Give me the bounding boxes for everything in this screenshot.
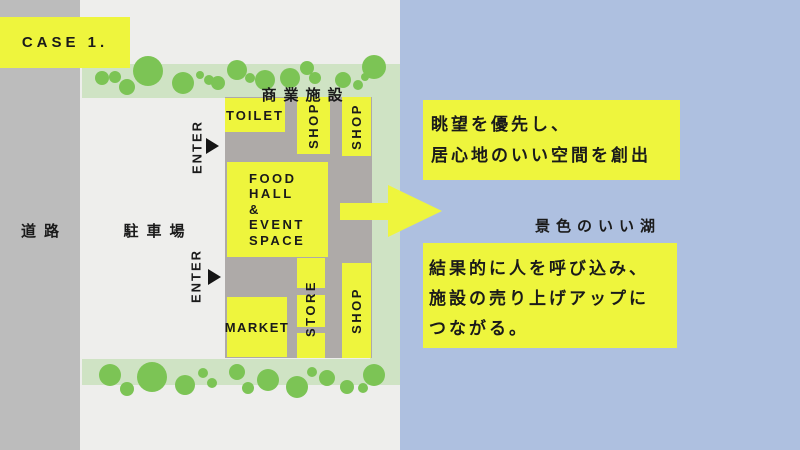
toilet-label: TOILET <box>226 108 284 123</box>
enter-label-bottom: ENTER <box>189 249 204 303</box>
shop-top-inner-label: SHOP <box>306 102 321 149</box>
callout-view-priority: 眺望を優先し、 居心地のいい空間を創出 <box>423 100 680 180</box>
market-label: MARKET <box>225 320 290 335</box>
store-label: STORE <box>304 279 319 336</box>
road-label: 道路 <box>0 220 80 241</box>
enter-label-top: ENTER <box>190 120 205 174</box>
callout-sales-result: 結果的に人を呼び込み、 施設の売り上げアップに つながる。 <box>423 243 677 348</box>
facility-label: 商業施設 <box>246 84 358 105</box>
enter-arrow-top-icon <box>206 138 219 154</box>
building-shop-top-inner: SHOP <box>297 97 330 154</box>
lake-label: 景色のいい湖 <box>528 215 668 236</box>
building-shop-bottom: SHOP <box>342 263 371 358</box>
shop-bottom-label: SHOP <box>349 287 364 334</box>
shop-top-outer-label: SHOP <box>349 103 364 150</box>
case-label: CASE 1. <box>22 34 108 51</box>
building-food-hall: FOOD HALL & EVENT SPACE <box>227 162 328 257</box>
enter-arrow-bottom-icon <box>208 269 221 285</box>
building-store: STORE <box>297 256 325 360</box>
slide-canvas: TOILET SHOP SHOP FOOD HALL & EVENT SPACE… <box>0 0 800 450</box>
building-shop-top-outer: SHOP <box>342 97 371 156</box>
parking-label: 駐車場 <box>108 220 200 241</box>
building-market: MARKET <box>227 297 287 357</box>
case-badge: CASE 1. <box>0 17 130 68</box>
food-hall-label: FOOD HALL & EVENT SPACE <box>227 171 305 249</box>
tree-band-bottom <box>82 359 400 385</box>
flow-arrow-icon <box>336 180 446 242</box>
